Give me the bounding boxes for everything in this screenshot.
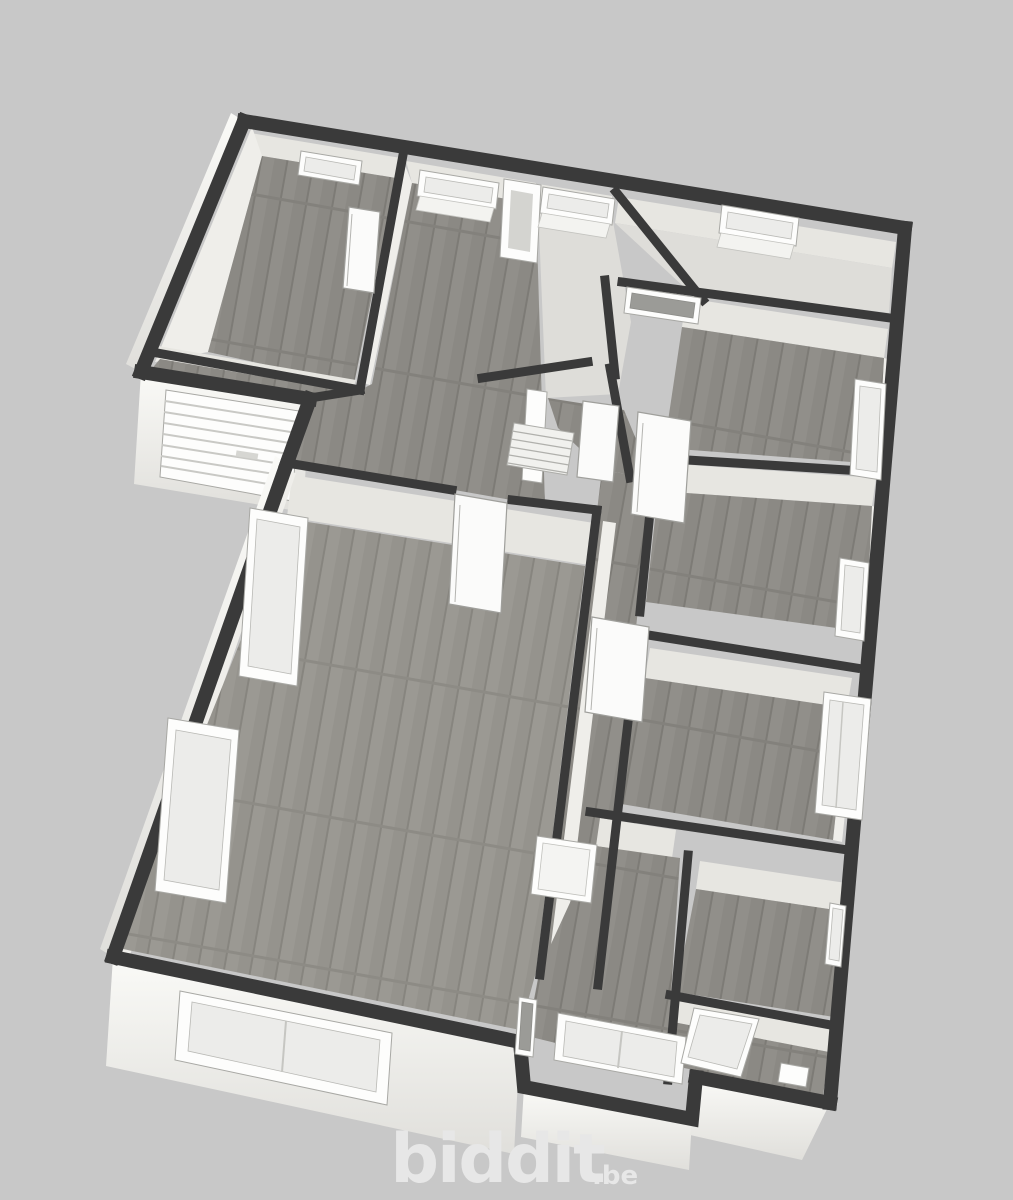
door-bedroom [585,617,649,722]
window-right-middle [835,558,869,641]
window-living-upper [239,508,308,686]
room-bottom-right-upper [676,861,846,1017]
front-door [500,179,541,263]
window-bedroom [815,692,871,820]
door-right-rooms [631,412,691,523]
pivot-window-bottom-centre [531,836,597,903]
door-top-left-room [343,207,380,293]
bay-window-left [515,997,537,1057]
door-living [449,494,507,613]
window-right-upper [850,379,886,480]
floor-plan-page: biddit .be [0,0,1013,1200]
logo: biddit .be [390,1120,638,1199]
door-stairs-closet [577,401,619,482]
window-living-lower [155,718,239,903]
logo-suffix-text: .be [592,1161,638,1191]
logo-text: biddit [390,1120,604,1199]
floor-plan-3d-render: biddit .be [0,0,1013,1200]
